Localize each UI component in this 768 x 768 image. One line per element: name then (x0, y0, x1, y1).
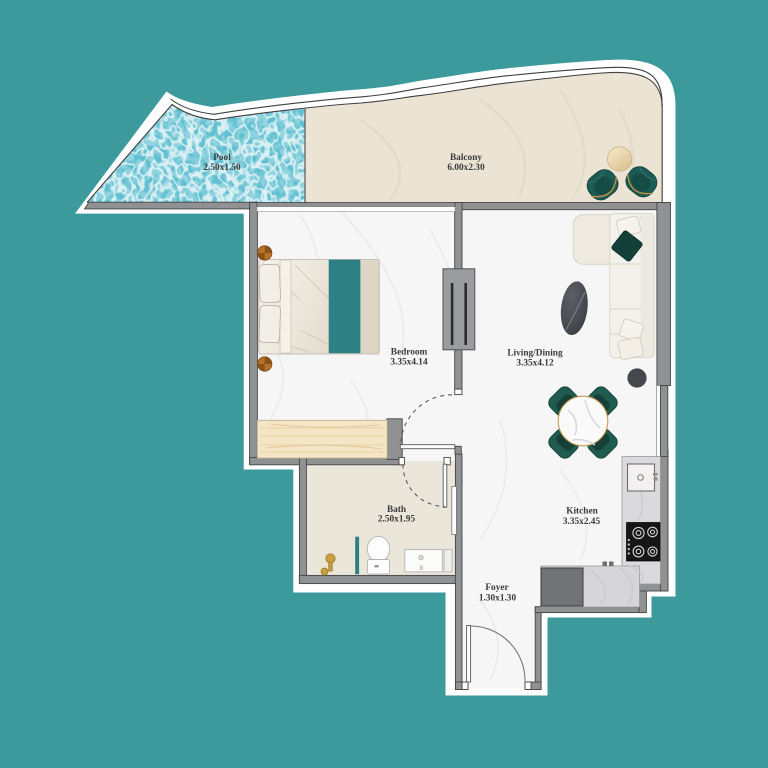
svg-text:Balcony: Balcony (450, 153, 482, 163)
svg-text:3.35x4.12: 3.35x4.12 (516, 358, 554, 368)
svg-text:Pool: Pool (213, 153, 231, 163)
svg-text:3.35x2.45: 3.35x2.45 (563, 517, 601, 527)
svg-text:Living/Dining: Living/Dining (507, 348, 563, 358)
svg-text:3.35x4.14: 3.35x4.14 (390, 358, 428, 368)
svg-text:6.00x2.30: 6.00x2.30 (447, 163, 485, 173)
svg-text:Bath: Bath (387, 505, 407, 515)
svg-text:1.30x1.30: 1.30x1.30 (479, 594, 517, 604)
svg-text:Kitchen: Kitchen (566, 507, 598, 517)
svg-text:Bedroom: Bedroom (391, 347, 428, 357)
svg-text:2.50x1.50: 2.50x1.50 (203, 163, 241, 173)
svg-text:Foyer: Foyer (485, 583, 508, 593)
svg-text:2.50x1.95: 2.50x1.95 (378, 515, 416, 525)
